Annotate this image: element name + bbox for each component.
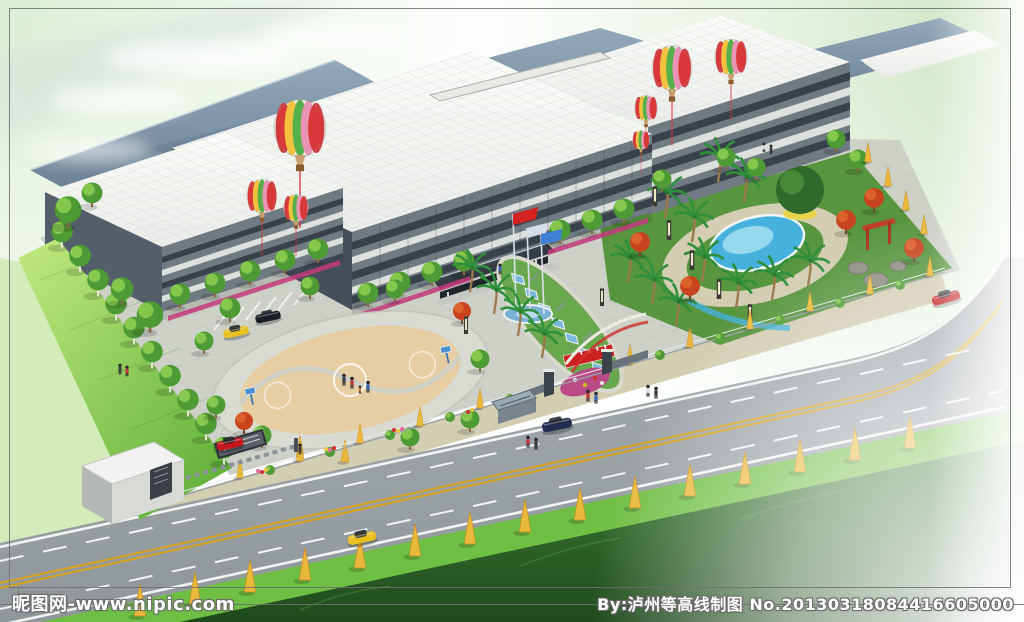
- scene-illustration: [0, 0, 1024, 622]
- rendering-canvas: 昵图网-www.nipic.com By:泸州等高线制图 No.20130318…: [0, 0, 1024, 622]
- watermark-site: 昵图网-www.nipic.com: [12, 590, 235, 616]
- fade-right-edge: [930, 0, 1024, 622]
- watermark-credit: By:泸州等高线制图 No.20130318084416605000: [597, 591, 1014, 615]
- mist-bottom-right: [0, 0, 1024, 622]
